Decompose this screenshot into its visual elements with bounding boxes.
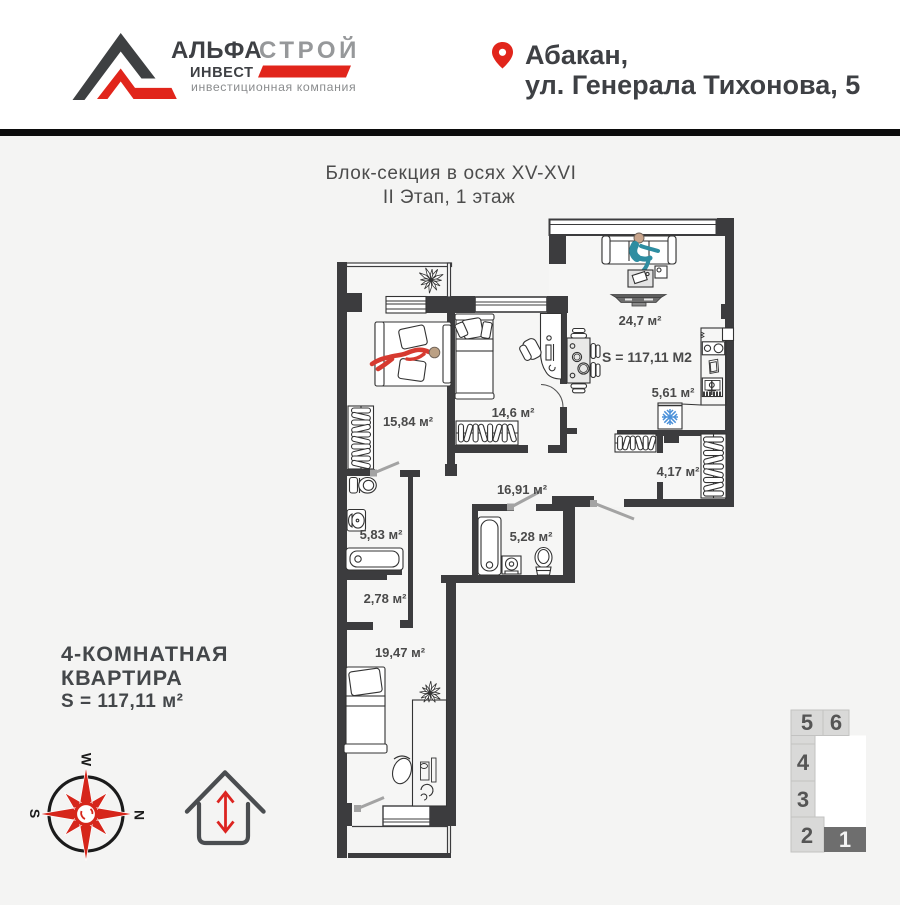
svg-text:15,84 м²: 15,84 м² — [383, 414, 434, 429]
svg-text:инвестиционная компания: инвестиционная компания — [191, 80, 356, 94]
svg-text:16,91 м²: 16,91 м² — [497, 482, 548, 497]
svg-text:5: 5 — [801, 710, 813, 735]
svg-text:2: 2 — [801, 823, 813, 848]
svg-text:S: S — [27, 809, 43, 818]
svg-text:1: 1 — [839, 827, 851, 852]
svg-text:АЛЬФА: АЛЬФА — [171, 37, 262, 64]
svg-text:Блок-секция в осях XV-XVI: Блок-секция в осях XV-XVI — [326, 163, 577, 184]
svg-text:24,7 м²: 24,7 м² — [619, 313, 663, 328]
svg-text:5,83 м²: 5,83 м² — [360, 527, 404, 542]
svg-text:4,17 м²: 4,17 м² — [657, 464, 701, 479]
svg-text:S = 117,11 М2: S = 117,11 М2 — [602, 349, 692, 365]
svg-text:5,61 м²: 5,61 м² — [652, 385, 696, 400]
svg-text:ИНВЕСТ: ИНВЕСТ — [190, 65, 254, 81]
svg-text:N: N — [132, 810, 148, 820]
svg-text:Абакан,: Абакан, — [525, 40, 628, 70]
svg-text:4-КОМНАТНАЯ: 4-КОМНАТНАЯ — [61, 642, 229, 666]
svg-text:6: 6 — [830, 710, 842, 735]
svg-text:СТРОЙ: СТРОЙ — [259, 36, 360, 64]
svg-text:ул. Генерала Тихонова, 5: ул. Генерала Тихонова, 5 — [525, 70, 860, 100]
svg-text:W: W — [79, 753, 95, 767]
svg-text:КВАРТИРА: КВАРТИРА — [61, 666, 183, 690]
svg-text:II Этап, 1 этаж: II Этап, 1 этаж — [383, 187, 515, 208]
svg-text:5,28 м²: 5,28 м² — [510, 529, 554, 544]
svg-text:S = 117,11 м²: S = 117,11 м² — [61, 691, 184, 712]
svg-text:3: 3 — [797, 787, 809, 812]
svg-text:19,47 м²: 19,47 м² — [375, 645, 426, 660]
svg-text:2,78 м²: 2,78 м² — [364, 591, 408, 606]
svg-text:14,6 м²: 14,6 м² — [492, 405, 536, 420]
svg-text:4: 4 — [797, 750, 810, 775]
